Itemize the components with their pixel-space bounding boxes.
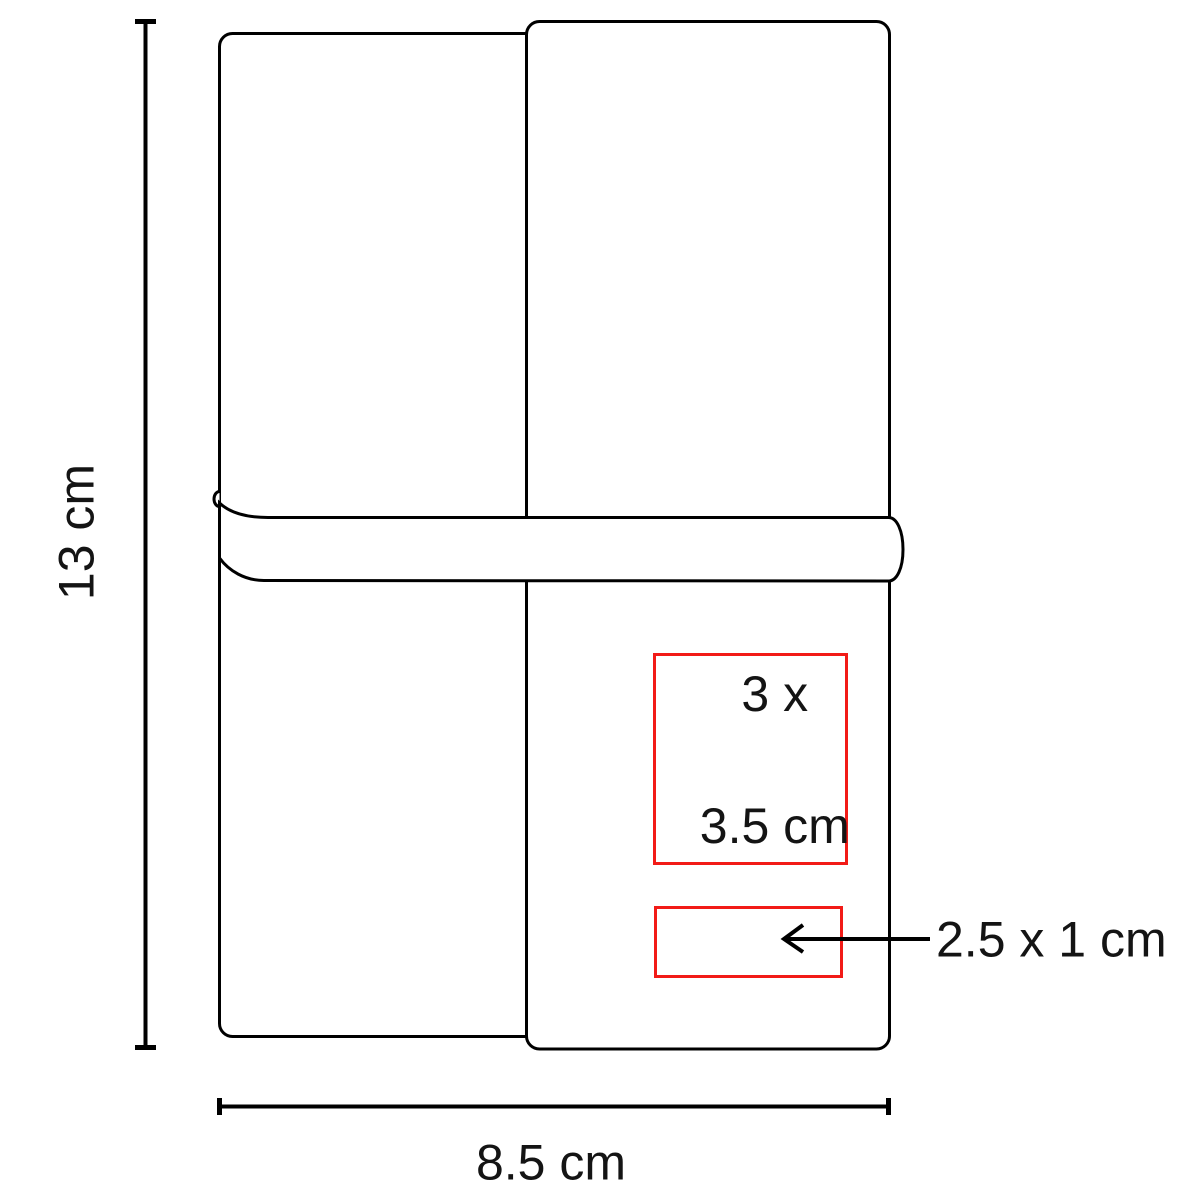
height-dimension-label: 13 cm: [50, 464, 105, 600]
width-dimension-line: [220, 1098, 889, 1115]
imprint-area-small-label: 2.5 x 1 cm: [936, 913, 1167, 968]
width-dimension-label: 8.5 cm: [476, 1136, 626, 1191]
imprint-area-large-label-line1: 3 x: [741, 666, 808, 722]
height-dimension-line: [135, 22, 156, 1048]
product-dimension-diagram: 13 cm 8.5 cm 3 x 3.5 cm 2.5 x 1 cm: [0, 0, 1200, 1200]
line-art: [0, 0, 1200, 1200]
imprint-area-large-label: 3 x 3.5 cm: [644, 595, 850, 925]
imprint-area-large-label-line2: 3.5 cm: [700, 798, 850, 854]
